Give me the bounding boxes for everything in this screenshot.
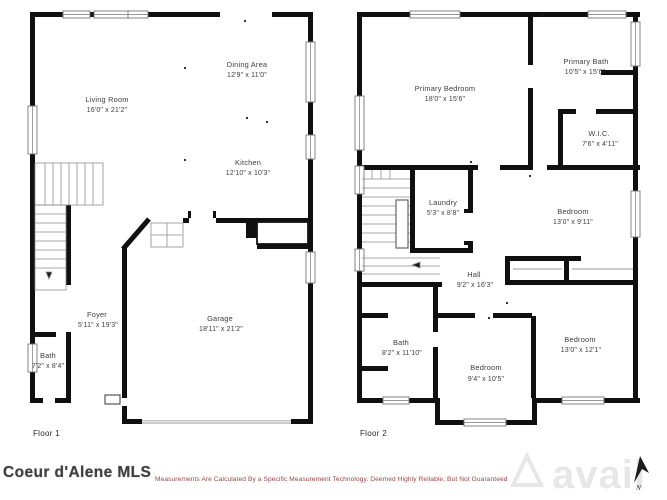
floor2-title: Floor 2 [360, 429, 387, 438]
door-jamb [464, 209, 473, 213]
wall [433, 347, 438, 398]
wall [493, 313, 532, 318]
floor1-title: Floor 1 [33, 429, 60, 438]
room-label-hall: Hall [467, 270, 481, 279]
wall [558, 109, 563, 170]
wall [438, 313, 475, 318]
wall [410, 248, 473, 253]
room-label-bedroom-se: Bedroom [564, 335, 595, 344]
door-jamb [213, 211, 216, 218]
floor2-plan: Primary Bedroom 18'0" x 15'6" Primary Ba… [355, 11, 640, 438]
side-door [105, 395, 120, 404]
garage-entry-steps [151, 223, 183, 247]
wall [362, 165, 478, 170]
floor1-windows [28, 11, 315, 404]
wall [308, 283, 313, 424]
wall [528, 88, 533, 170]
room-label-foyer: Foyer [87, 310, 107, 319]
room-dims-bath-f1: 7'2" x 8'4" [32, 363, 65, 370]
room-dims-garage: 18'11" x 21'2" [199, 326, 243, 333]
watermark-logo-icon [510, 452, 544, 488]
wall [468, 165, 473, 213]
wall [122, 419, 142, 424]
room-dims-bedroom-s: 9'4" x 10'5" [468, 376, 505, 383]
wall [66, 332, 71, 398]
entry-closet [257, 222, 308, 244]
garage-door [142, 421, 291, 423]
wall [55, 398, 71, 403]
room-dims-kitchen: 12'10" x 10'3" [226, 170, 271, 177]
room-dims-bedroom-ne: 13'0" x 9'11" [553, 219, 593, 226]
room-label-bath-f1: Bath [40, 351, 56, 360]
diagonal-wall [123, 219, 149, 249]
wall [30, 398, 43, 403]
mls-attribution: Coeur d'Alene MLS [3, 464, 151, 482]
wall [500, 165, 530, 170]
wall [508, 280, 637, 285]
room-label-primary-bath: Primary Bath [563, 57, 608, 66]
room-dims-bath-f2: 8'2" x 11'10" [382, 350, 422, 357]
wall [505, 256, 581, 261]
north-label: N [635, 483, 642, 492]
room-dims-wic: 7'6" x 4'11" [582, 141, 618, 148]
door-jamb [464, 241, 473, 245]
wall [531, 316, 536, 398]
room-dims-bedroom-se: 13'0" x 12'1" [561, 347, 602, 354]
disclaimer-text: Measurements Are Calculated By a Specifi… [155, 476, 508, 483]
room-label-primary-bedroom: Primary Bedroom [415, 84, 476, 93]
stair-direction-arrow [46, 272, 52, 279]
floor-plan-page: { "floor1": { "label": "Floor 1", "rooms… [0, 0, 667, 500]
door-jamb [188, 211, 191, 218]
floor1-markers [184, 20, 268, 161]
room-label-bedroom-ne: Bedroom [557, 207, 588, 216]
room-dims-hall: 9'2" x 16'3" [457, 282, 494, 289]
staircase-floor2 [362, 170, 440, 274]
wall [272, 12, 313, 17]
wall [257, 244, 308, 249]
room-dims-primary-bath: 10'5" x 15'6" [565, 69, 606, 76]
room-dims-living-room: 16'0" x 21'2" [87, 107, 128, 114]
wall [122, 247, 127, 398]
wall [291, 419, 313, 424]
wall [596, 109, 638, 114]
wall [66, 205, 71, 285]
wall [362, 313, 388, 318]
wall [30, 332, 56, 337]
floor-plan-canvas: Living Room 16'0" x 21'2" Dining Area 12… [0, 0, 667, 455]
room-label-bedroom-s: Bedroom [470, 363, 501, 372]
room-label-dining-area: Dining Area [227, 60, 268, 69]
floor1-plan: Living Room 16'0" x 21'2" Dining Area 12… [28, 11, 315, 438]
wall [362, 366, 388, 371]
wall [183, 218, 189, 223]
room-label-kitchen: Kitchen [235, 158, 261, 167]
chimney-block [246, 222, 257, 238]
stair-railing [396, 200, 408, 248]
wall [601, 70, 638, 75]
stair-direction-arrow [412, 262, 420, 268]
room-dims-foyer: 5'11" x 19'3" [78, 322, 118, 329]
wall [433, 287, 438, 332]
room-label-wic: W.I.C. [588, 129, 609, 138]
room-label-living-room: Living Room [85, 95, 128, 104]
room-label-garage: Garage [207, 314, 233, 323]
room-dims-dining-area: 12'9" x 11'0" [227, 72, 267, 79]
floor1-walls [30, 12, 313, 424]
wall [528, 12, 533, 65]
room-dims-primary-bedroom: 18'0" x 15'6" [425, 96, 466, 103]
wall [362, 282, 442, 287]
north-arrow-icon: N [615, 438, 660, 498]
room-label-bath-f2: Bath [393, 338, 409, 347]
wall [410, 165, 415, 253]
room-label-laundry: Laundry [429, 198, 457, 207]
wall [357, 12, 362, 403]
room-dims-laundry: 5'3" x 8'8" [427, 210, 460, 217]
